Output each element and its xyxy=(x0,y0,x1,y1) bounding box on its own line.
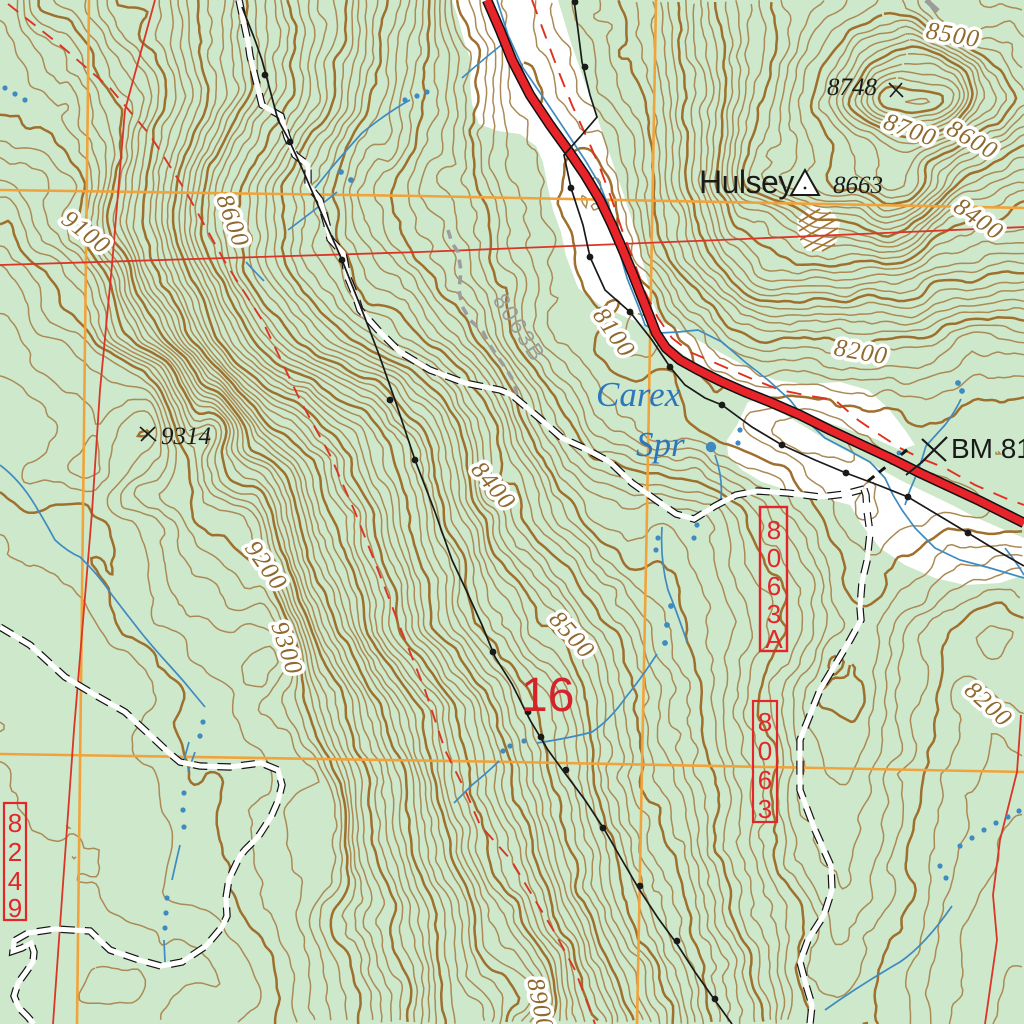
svg-text:4: 4 xyxy=(8,866,22,896)
svg-text:9: 9 xyxy=(8,893,22,923)
svg-text:8663: 8663 xyxy=(833,172,883,199)
svg-text:A: A xyxy=(765,624,783,654)
svg-text:0: 0 xyxy=(758,736,772,766)
svg-text:3: 3 xyxy=(758,794,772,824)
svg-text:9314: 9314 xyxy=(161,423,211,450)
svg-text:0: 0 xyxy=(767,543,781,573)
svg-text:8: 8 xyxy=(8,808,22,838)
svg-text:8: 8 xyxy=(767,515,781,545)
svg-text:Spr: Spr xyxy=(636,425,685,464)
svg-text:6: 6 xyxy=(767,571,781,601)
svg-text:8: 8 xyxy=(758,707,772,737)
svg-text:Carex: Carex xyxy=(596,375,681,414)
svg-text:Hulsey: Hulsey xyxy=(699,164,794,200)
svg-text:2: 2 xyxy=(8,837,22,867)
svg-text:16: 16 xyxy=(521,669,574,722)
svg-text:6: 6 xyxy=(758,765,772,795)
svg-text:BM 81: BM 81 xyxy=(951,433,1024,464)
svg-text:8748: 8748 xyxy=(827,74,878,101)
